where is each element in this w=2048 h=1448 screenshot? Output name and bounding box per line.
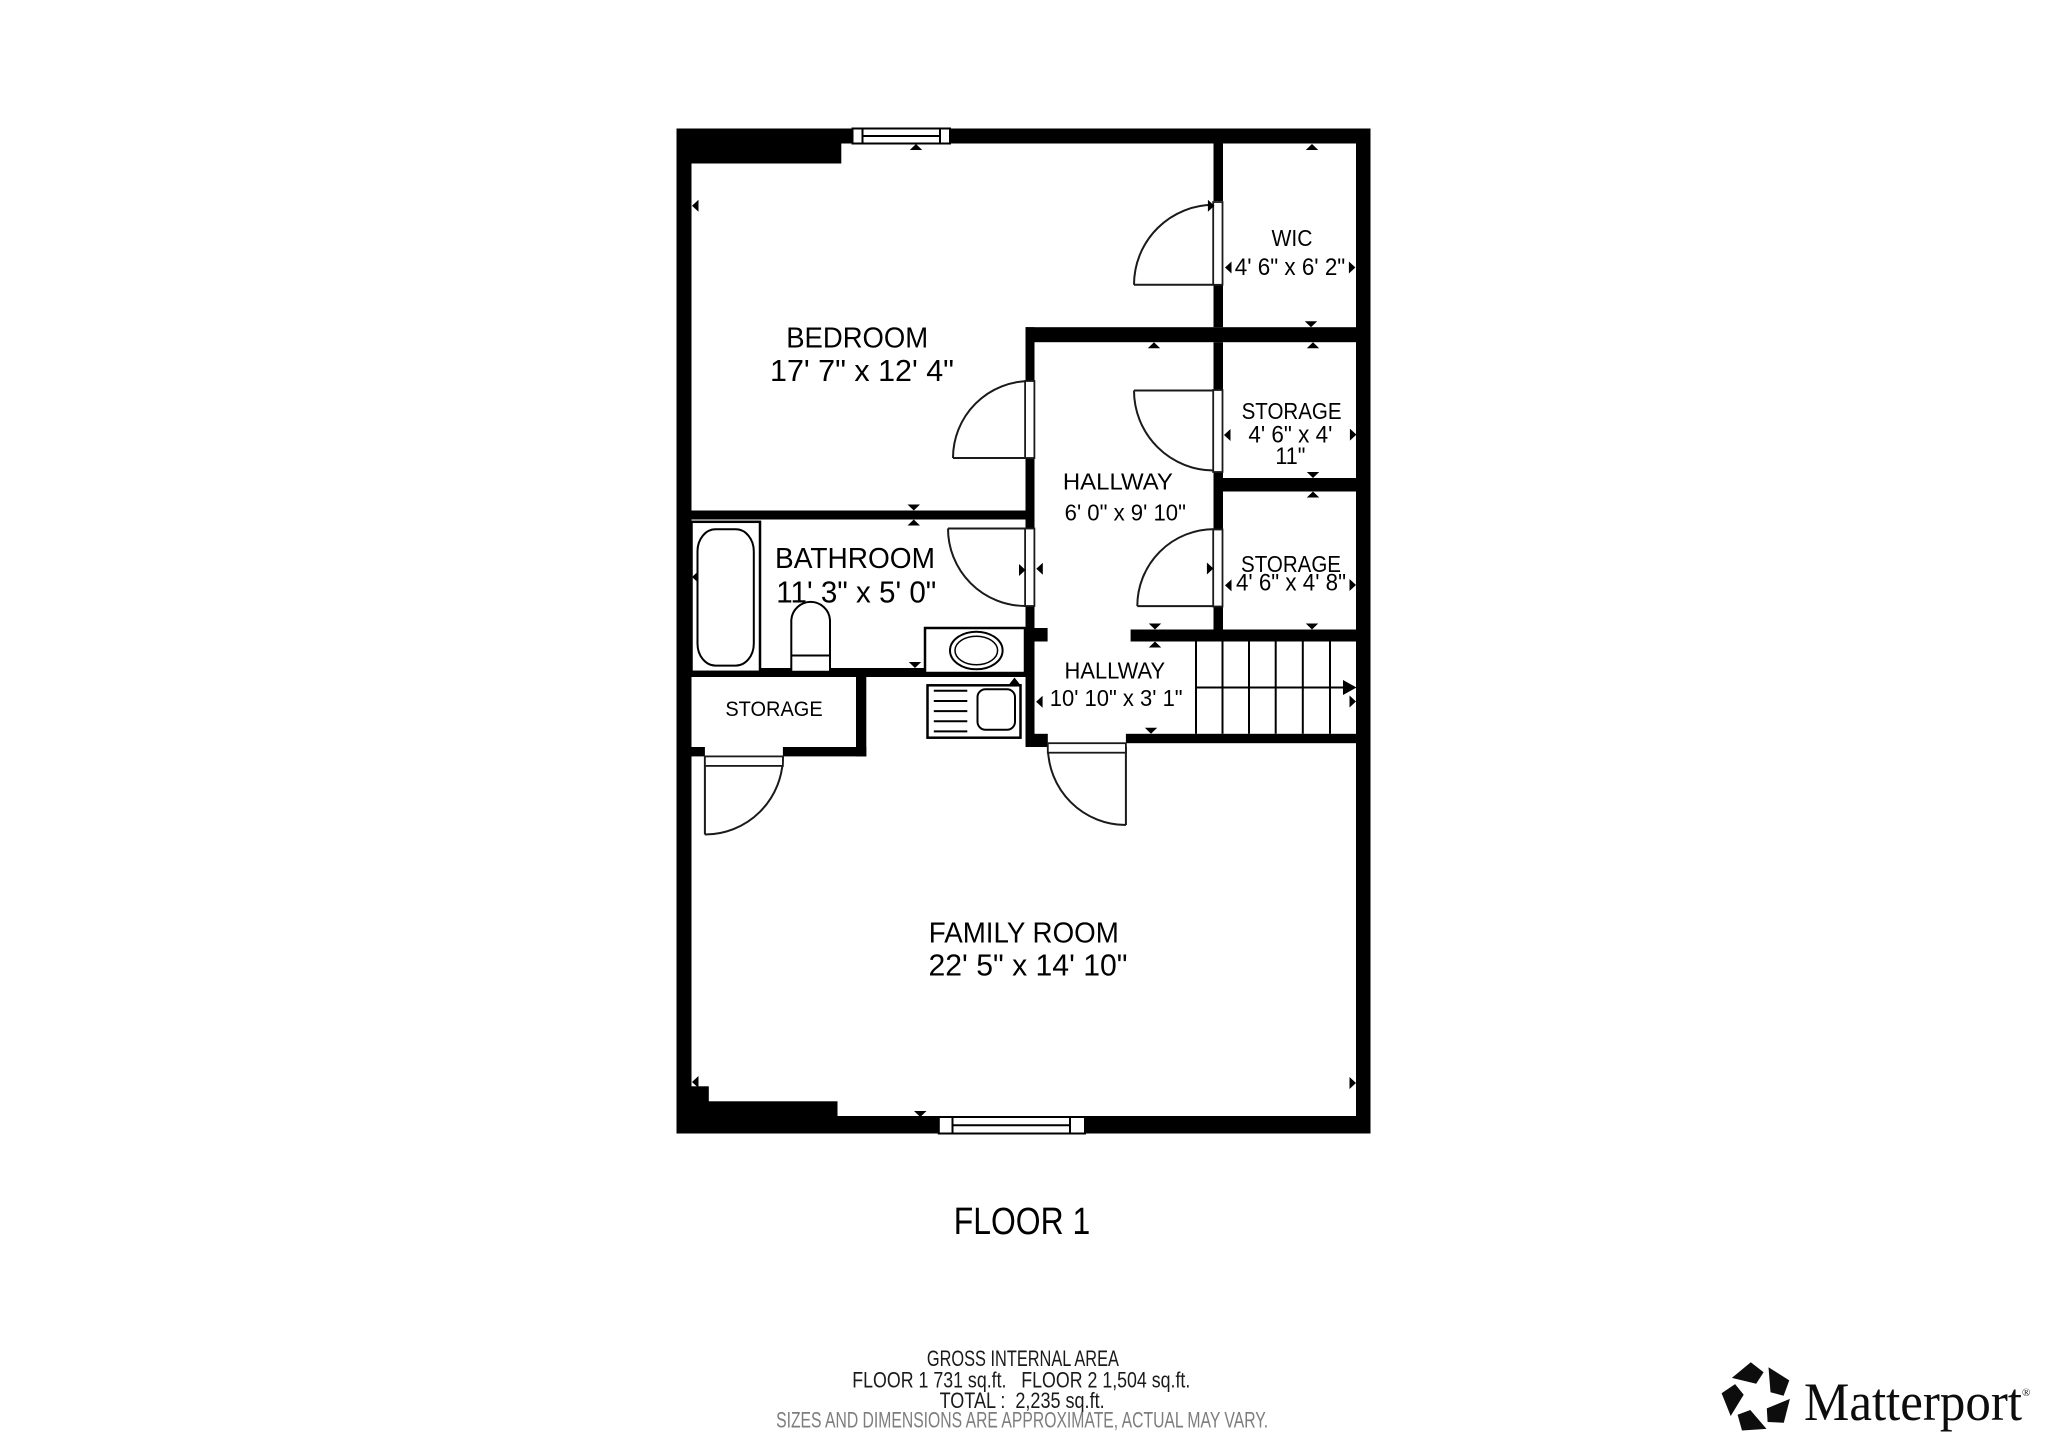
svg-text:10' 10" x 3' 1": 10' 10" x 3' 1": [1050, 685, 1183, 711]
svg-text:FAMILY ROOM: FAMILY ROOM: [929, 918, 1119, 950]
svg-text:HALLWAY: HALLWAY: [1065, 657, 1166, 683]
svg-text:11": 11": [1275, 443, 1305, 470]
svg-text:4' 6" x 4' 8": 4' 6" x 4' 8": [1236, 570, 1346, 597]
svg-text:6' 0" x 9' 10": 6' 0" x 9' 10": [1065, 499, 1186, 525]
svg-text:®: ®: [2022, 1387, 2030, 1399]
svg-text:STORAGE: STORAGE: [1242, 398, 1342, 424]
svg-text:11' 3" x 5' 0": 11' 3" x 5' 0": [776, 575, 936, 610]
svg-text:17' 7" x 12' 4": 17' 7" x 12' 4": [770, 353, 954, 388]
svg-text:HALLWAY: HALLWAY: [1063, 469, 1173, 495]
svg-text:STORAGE: STORAGE: [725, 698, 822, 721]
svg-text:FLOOR 1: FLOOR 1: [954, 1201, 1090, 1243]
svg-text:WIC: WIC: [1272, 225, 1313, 251]
svg-text:Matterport: Matterport: [1804, 1372, 2022, 1432]
svg-text:22' 5" x 14' 10": 22' 5" x 14' 10": [929, 948, 1128, 983]
svg-text:BEDROOM: BEDROOM: [786, 322, 928, 354]
svg-text:BATHROOM: BATHROOM: [775, 543, 935, 575]
svg-text:4' 6" x 6' 2": 4' 6" x 6' 2": [1235, 254, 1346, 281]
svg-text:SIZES AND DIMENSIONS ARE APPRO: SIZES AND DIMENSIONS ARE APPROXIMATE, AC…: [776, 1408, 1268, 1433]
